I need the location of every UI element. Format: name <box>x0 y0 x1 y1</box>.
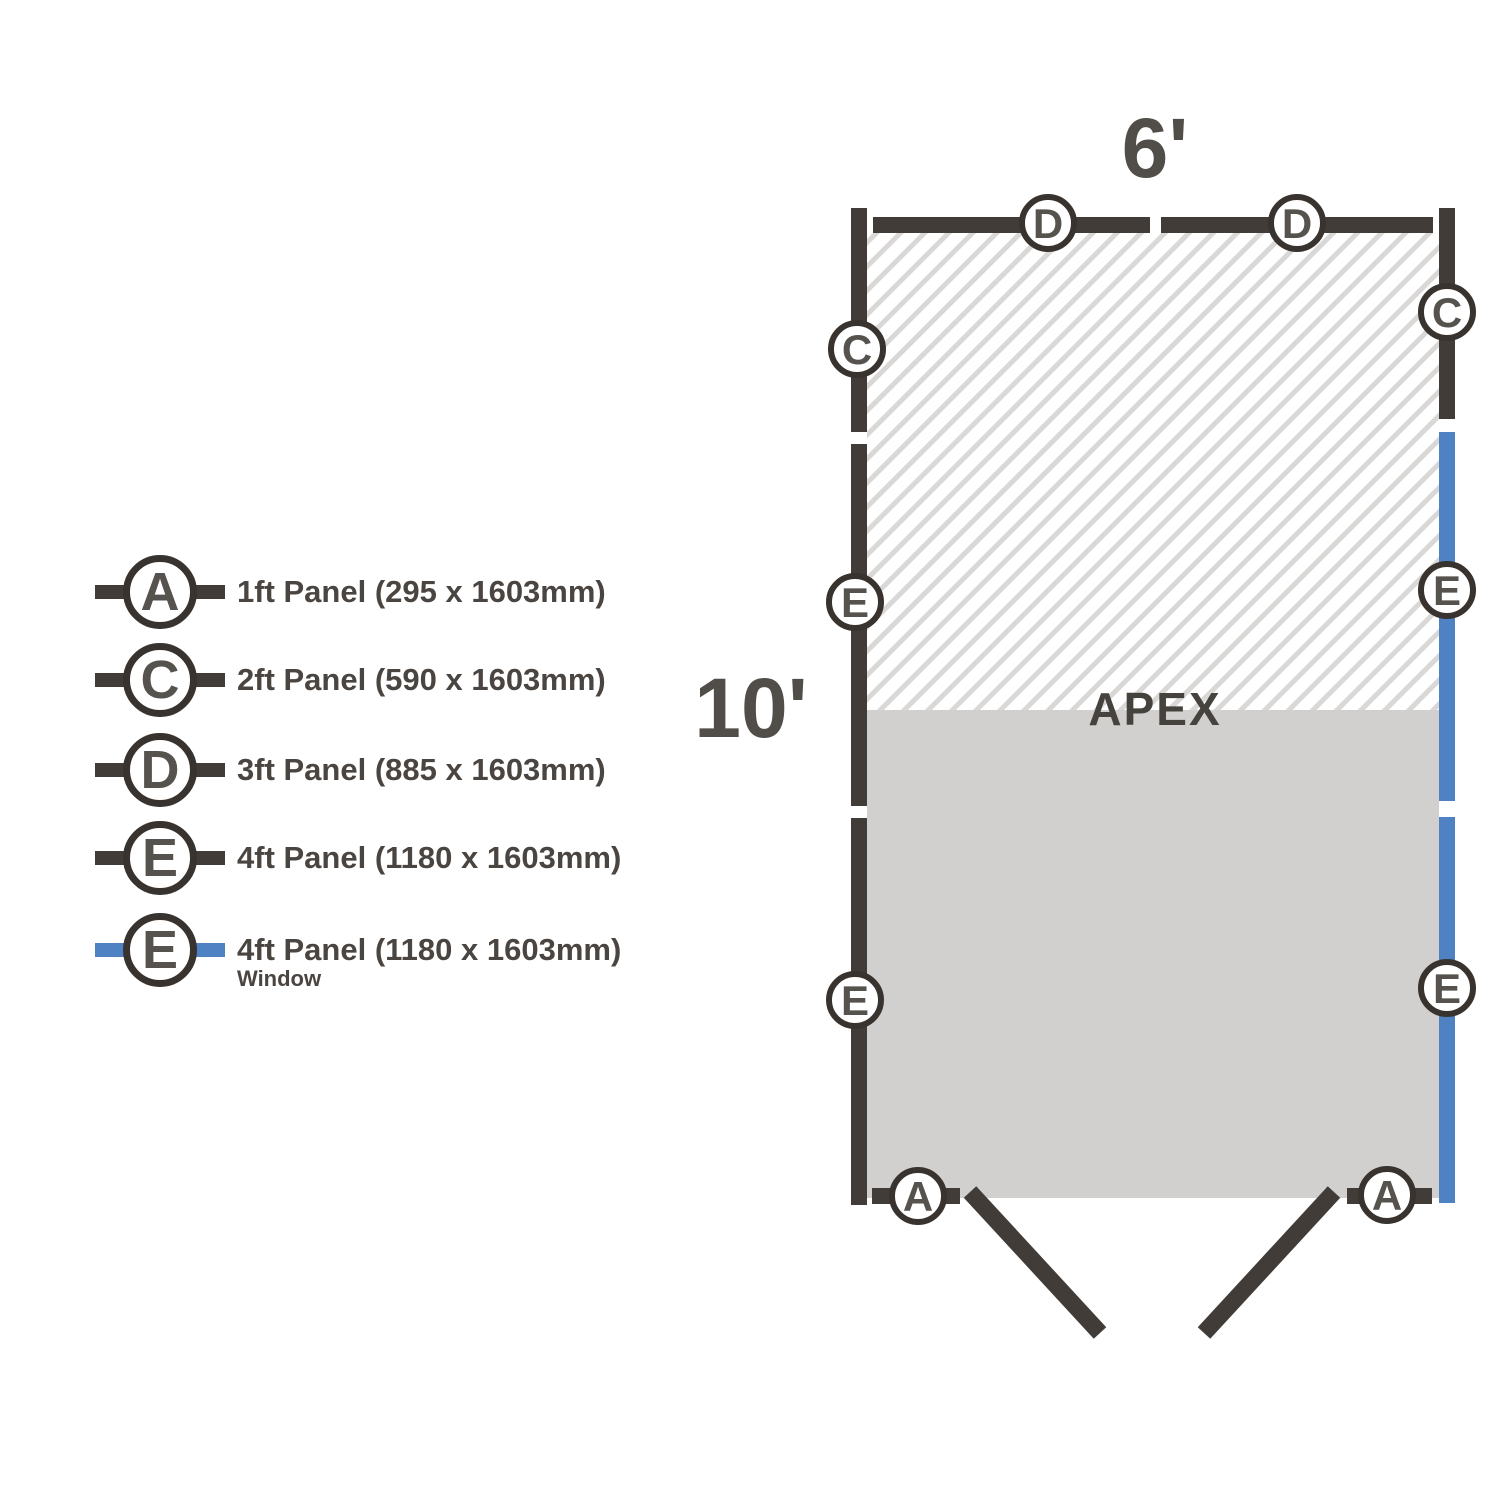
marker-left-c: C <box>831 323 883 375</box>
legend-label: 4ft Panel (1180 x 1603mm) <box>237 839 621 876</box>
marker-bottom-a1: A <box>892 1170 944 1222</box>
marker-bottom-a1-letter: A <box>903 1173 933 1220</box>
marker-left-e2: E <box>829 974 881 1026</box>
wall-top-d1 <box>873 217 1150 233</box>
marker-top-d1-letter: D <box>1033 200 1063 247</box>
legend-label: 4ft Panel (1180 x 1603mm) <box>237 931 621 968</box>
legend-sublabel: Window <box>237 966 321 992</box>
marker-right-e2-letter: E <box>1433 965 1461 1012</box>
floor-area <box>867 710 1439 1198</box>
apex-label: APEX <box>1088 683 1221 735</box>
marker-bottom-a2-letter: A <box>1372 1172 1402 1219</box>
marker-left-c-letter: C <box>842 326 872 373</box>
legend-circle-a: A <box>123 555 197 629</box>
marker-right-e2: E <box>1421 962 1473 1014</box>
legend-item-e-window: E 4ft Panel (1180 x 1603mm) Window <box>90 905 690 995</box>
legend-letter: A <box>141 561 180 623</box>
legend: A 1ft Panel (295 x 1603mm) C 2ft Panel (… <box>0 0 700 1500</box>
legend-label: 2ft Panel (590 x 1603mm) <box>237 661 606 698</box>
legend-item-a: A 1ft Panel (295 x 1603mm) <box>90 547 690 637</box>
door-right-open <box>1204 1192 1334 1333</box>
apex-roof-hatched-area <box>867 233 1439 710</box>
marker-top-d2-letter: D <box>1282 200 1312 247</box>
legend-letter: D <box>141 739 180 801</box>
door-left-open <box>970 1192 1100 1333</box>
wall-left-c <box>851 208 867 432</box>
legend-letter: E <box>142 919 178 981</box>
marker-left-e1: E <box>829 576 881 628</box>
marker-left-e2-letter: E <box>841 977 869 1024</box>
legend-label: 1ft Panel (295 x 1603mm) <box>237 573 606 610</box>
legend-circle-e: E <box>123 821 197 895</box>
marker-right-e1-letter: E <box>1433 567 1461 614</box>
marker-top-d2: D <box>1271 197 1323 249</box>
legend-label: 3ft Panel (885 x 1603mm) <box>237 751 606 788</box>
marker-top-d1: D <box>1022 197 1074 249</box>
legend-letter: E <box>142 827 178 889</box>
legend-circle-c: C <box>123 643 197 717</box>
depth-label: 10' <box>694 661 807 755</box>
marker-right-e1: E <box>1421 564 1473 616</box>
marker-left-e1-letter: E <box>841 579 869 626</box>
marker-right-c-letter: C <box>1432 289 1462 336</box>
width-label: 6' <box>1122 101 1189 195</box>
legend-item-c: C 2ft Panel (590 x 1603mm) <box>90 635 690 725</box>
legend-item-d: D 3ft Panel (885 x 1603mm) <box>90 725 690 815</box>
marker-right-c: C <box>1421 286 1473 338</box>
marker-bottom-a2: A <box>1361 1169 1413 1221</box>
legend-item-e: E 4ft Panel (1180 x 1603mm) <box>90 813 690 903</box>
legend-letter: C <box>141 649 180 711</box>
legend-circle-e-window: E <box>123 913 197 987</box>
legend-circle-d: D <box>123 733 197 807</box>
